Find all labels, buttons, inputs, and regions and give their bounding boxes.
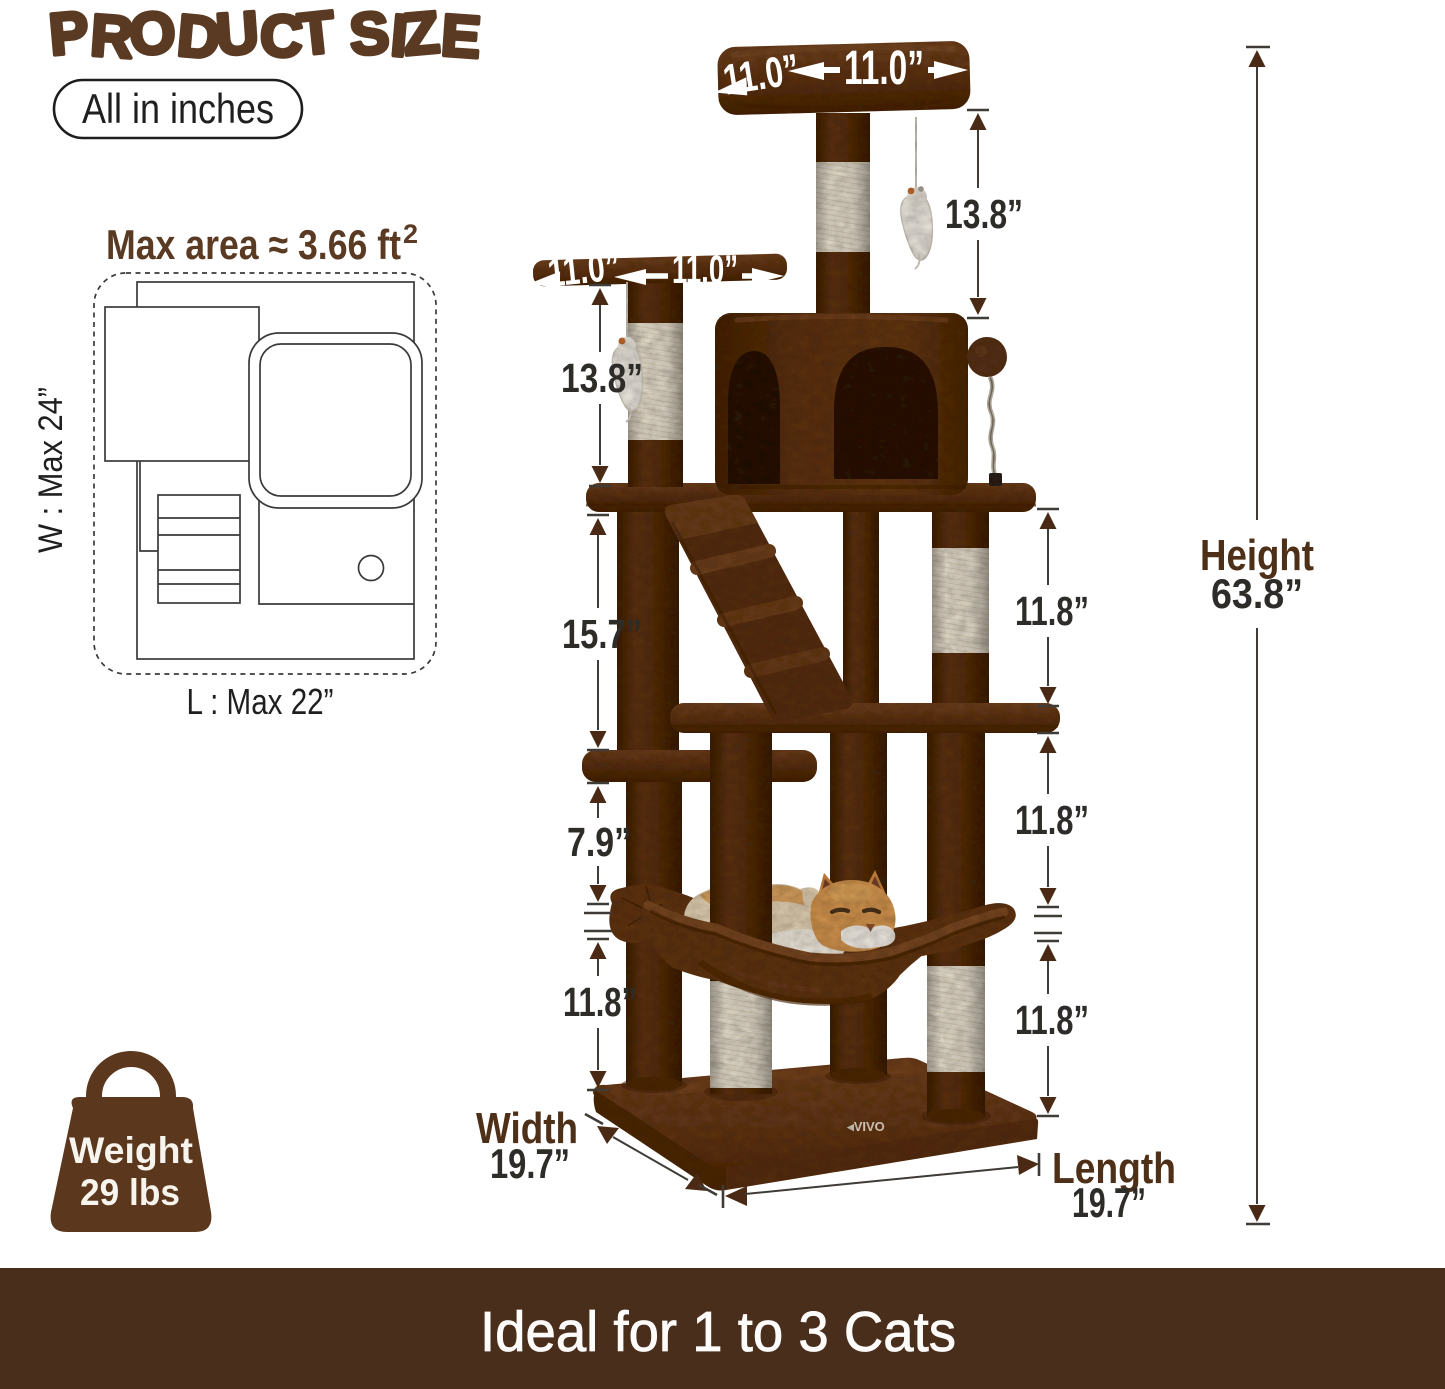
svg-text:◂VIVO: ◂VIVO xyxy=(846,1119,885,1134)
svg-text:11.0”: 11.0” xyxy=(844,42,924,95)
svg-text:Max area ≈ 3.66 ft: Max area ≈ 3.66 ft xyxy=(106,221,401,268)
svg-text:19.7”: 19.7” xyxy=(1072,1179,1146,1226)
svg-text:11.8”: 11.8” xyxy=(563,979,637,1025)
svg-text:All in inches: All in inches xyxy=(82,85,274,132)
svg-text:Weight: Weight xyxy=(69,1130,193,1171)
svg-text:Ideal for 1 to 3 Cats: Ideal for 1 to 3 Cats xyxy=(480,1300,956,1364)
svg-text:7.9”: 7.9” xyxy=(567,819,631,865)
svg-text:L : Max 22”: L : Max 22” xyxy=(187,681,334,722)
svg-text:11.8”: 11.8” xyxy=(1015,997,1089,1043)
svg-text:63.8”: 63.8” xyxy=(1211,570,1303,617)
svg-text:15.7”: 15.7” xyxy=(562,611,642,657)
svg-text:13.8”: 13.8” xyxy=(945,191,1023,237)
svg-text:19.7”: 19.7” xyxy=(490,1140,570,1187)
svg-text:13.8”: 13.8” xyxy=(561,355,643,401)
svg-text:11.0”: 11.0” xyxy=(672,248,738,292)
svg-text:11.8”: 11.8” xyxy=(1015,797,1089,843)
svg-text:2: 2 xyxy=(403,219,418,249)
svg-text:29 lbs: 29 lbs xyxy=(80,1172,180,1213)
svg-text:W : Max 24”: W : Max 24” xyxy=(32,387,70,553)
svg-text:11.8”: 11.8” xyxy=(1015,588,1089,634)
svg-text:PRODUCT SIZE: PRODUCT SIZE xyxy=(46,0,482,72)
